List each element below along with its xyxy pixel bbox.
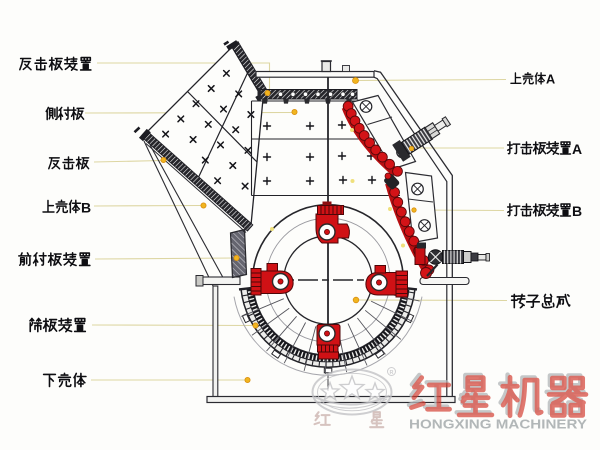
svg-text:HONGXING MACHINERY: HONGXING MACHINERY xyxy=(409,417,587,432)
svg-text:R: R xyxy=(390,370,394,376)
svg-text:A: A xyxy=(546,73,555,87)
svg-text:A: A xyxy=(572,141,582,157)
svg-text:B: B xyxy=(81,199,91,215)
svg-text:B: B xyxy=(572,203,582,219)
